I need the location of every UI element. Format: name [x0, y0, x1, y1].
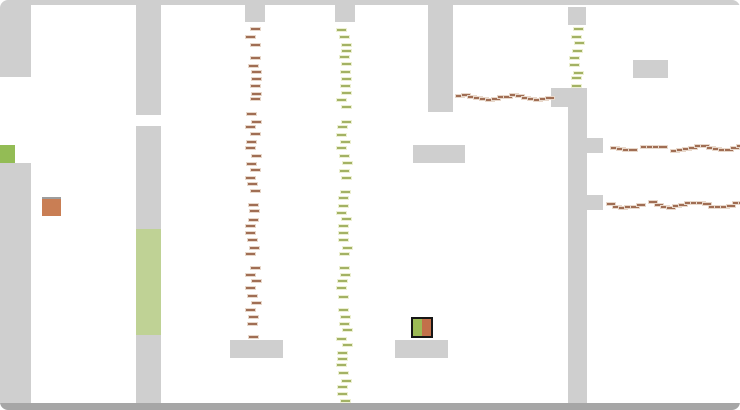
- trail-brown-vertical-dash: [251, 70, 262, 74]
- trail-brown-vertical-dash: [247, 182, 258, 186]
- trail-green-vertical-long-dash: [340, 273, 351, 277]
- trail-green-vertical-long-dash: [337, 357, 348, 361]
- bottom-border: [0, 403, 740, 410]
- orange-marker: [42, 197, 61, 216]
- trail-brown-vertical-dash: [248, 218, 259, 222]
- trail-green-vertical-long-dash: [341, 105, 352, 109]
- trail-brown-vertical-dash: [245, 231, 256, 235]
- trail-brown-vertical-dash: [251, 120, 262, 124]
- platform-bottom-left: [230, 340, 283, 358]
- trail-green-vertical-long-dash: [342, 161, 353, 165]
- player-left-half: [413, 319, 422, 336]
- wall-col2-mid: [136, 126, 161, 229]
- trail-green-vertical-long-dash: [341, 49, 352, 53]
- trail-green-vertical-long-dash: [341, 217, 352, 221]
- trail-brown-vertical-dash: [247, 294, 258, 298]
- trail-green-vertical-long-dash: [340, 399, 351, 403]
- trail-brown-vertical-dash: [248, 315, 259, 319]
- platform-bottom-right: [395, 340, 448, 358]
- trail-brown-vertical-dash: [251, 301, 262, 305]
- trail-brown-vertical-dash: [245, 308, 256, 312]
- trail-green-vertical-short-dash: [574, 41, 585, 45]
- player-right-half: [422, 319, 431, 336]
- game-canvas[interactable]: [0, 0, 740, 410]
- trail-green-vertical-short-dash: [572, 49, 583, 53]
- trail-brown-vertical-dash: [250, 84, 261, 88]
- trail-green-vertical-long-dash: [338, 238, 349, 242]
- trail-brown-vertical-dash: [245, 286, 256, 290]
- trail-green-vertical-long-dash: [338, 204, 349, 208]
- trail-green-vertical-long-dash: [337, 351, 348, 355]
- trail-brown-vertical-dash: [249, 209, 260, 213]
- trail-brown-vertical-dash: [251, 92, 262, 96]
- trail-green-vertical-long-dash: [338, 295, 349, 299]
- trail-green-vertical-long-dash: [340, 84, 351, 88]
- trail-brown-vertical-dash: [250, 132, 261, 136]
- trail-green-vertical-long-dash: [342, 246, 353, 250]
- platform-top-right: [633, 60, 668, 78]
- trail-green-vertical-long-dash: [337, 385, 348, 389]
- trail-brown-vertical-dash: [248, 335, 259, 339]
- trail-green-vertical-long-dash: [341, 120, 352, 124]
- wall-col2-top: [136, 5, 161, 115]
- wall-rcol-tab1: [587, 138, 603, 153]
- trail-brown-vertical-dash: [245, 146, 256, 150]
- trail-green-vertical-long-dash: [341, 379, 352, 383]
- trail-green-vertical-long-dash: [338, 231, 349, 235]
- wall-left-upper: [0, 5, 31, 77]
- trail-brown-vertical-dash: [247, 322, 258, 326]
- trail-green-vertical-short-dash: [573, 71, 584, 75]
- trail-brown-vertical-dash: [250, 56, 261, 60]
- trail-brown-vertical-dash: [246, 112, 257, 116]
- wall-rcol-tab2: [587, 195, 603, 210]
- trail-green-vertical-short-dash: [571, 35, 582, 39]
- trail-green-vertical-long-dash: [340, 70, 351, 74]
- wall-col3: [428, 5, 453, 112]
- trail-brown-vertical-dash: [250, 168, 261, 172]
- trail-brown-vertical-dash: [246, 162, 257, 166]
- trail-green-vertical-long-dash: [337, 125, 348, 129]
- trail-brown-vertical-dash: [251, 77, 262, 81]
- trail-green-vertical-short-dash: [573, 27, 584, 31]
- trail-brown-horizontal-right2-dash: [636, 203, 646, 207]
- top-border: [0, 0, 740, 5]
- wall-stub-b: [335, 5, 355, 22]
- trail-green-vertical-long-dash: [336, 28, 347, 32]
- trail-green-vertical-long-dash: [339, 35, 350, 39]
- trail-green-vertical-long-dash: [336, 98, 347, 102]
- trail-green-vertical-long-dash: [341, 43, 352, 47]
- trail-brown-vertical-dash: [248, 203, 259, 207]
- green-marker: [0, 145, 15, 163]
- door-green: [136, 229, 161, 335]
- trail-green-vertical-short-dash: [571, 76, 582, 80]
- wall-rcol-main: [568, 88, 587, 404]
- trail-green-vertical-long-dash: [341, 62, 352, 66]
- trail-green-vertical-long-dash: [337, 279, 348, 283]
- trail-brown-vertical-dash: [248, 64, 259, 68]
- trail-brown-vertical-dash: [245, 273, 256, 277]
- trail-green-vertical-long-dash: [336, 363, 347, 367]
- trail-green-vertical-long-dash: [340, 140, 351, 144]
- trail-green-vertical-short-dash: [569, 56, 580, 60]
- trail-green-vertical-long-dash: [341, 91, 352, 95]
- trail-green-vertical-long-dash: [336, 146, 347, 150]
- trail-green-vertical-long-dash: [338, 371, 349, 375]
- player-square[interactable]: [411, 317, 433, 338]
- wall-stub-a: [245, 5, 265, 22]
- wall-stub-c: [568, 7, 586, 25]
- trail-brown-horizontal-right1-dash: [628, 148, 638, 152]
- trail-green-vertical-long-dash: [341, 176, 352, 180]
- trail-green-vertical-long-dash: [339, 55, 350, 59]
- trail-green-vertical-long-dash: [339, 266, 350, 270]
- trail-green-vertical-long-dash: [339, 322, 350, 326]
- trail-green-vertical-long-dash: [339, 252, 350, 256]
- trail-green-vertical-long-dash: [336, 286, 347, 290]
- trail-green-vertical-long-dash: [339, 154, 350, 158]
- trail-brown-vertical-dash: [250, 97, 261, 101]
- trail-brown-horizontal-right1-dash: [736, 144, 740, 148]
- trail-brown-vertical-dash: [249, 246, 260, 250]
- trail-green-vertical-long-dash: [337, 392, 348, 396]
- trail-green-vertical-long-dash: [336, 337, 347, 341]
- trail-green-vertical-long-dash: [336, 133, 347, 137]
- trail-brown-vertical-dash: [245, 224, 256, 228]
- trail-brown-vertical-dash: [251, 279, 262, 283]
- trail-brown-vertical-dash: [245, 176, 256, 180]
- trail-green-vertical-short-dash: [571, 84, 582, 88]
- trail-green-vertical-long-dash: [338, 224, 349, 228]
- trail-brown-vertical-dash: [250, 43, 261, 47]
- trail-green-vertical-long-dash: [339, 169, 350, 173]
- trail-brown-vertical-dash: [250, 189, 261, 193]
- trail-brown-horizontal-top-dash: [545, 96, 555, 100]
- trail-green-vertical-long-dash: [340, 315, 351, 319]
- trail-green-vertical-long-dash: [340, 190, 351, 194]
- trail-brown-vertical-dash: [245, 35, 256, 39]
- trail-brown-vertical-dash: [246, 140, 257, 144]
- trail-green-vertical-long-dash: [338, 196, 349, 200]
- trail-brown-vertical-dash: [247, 238, 258, 242]
- wall-col2-bottom: [136, 335, 161, 404]
- trail-brown-vertical-dash: [250, 27, 261, 31]
- trail-green-vertical-long-dash: [342, 328, 353, 332]
- trail-brown-vertical-dash: [245, 252, 256, 256]
- trail-brown-vertical-dash: [250, 266, 261, 270]
- trail-brown-vertical-dash: [251, 154, 262, 158]
- trail-brown-horizontal-right1-dash: [658, 145, 668, 149]
- trail-brown-vertical-dash: [245, 125, 256, 129]
- trail-green-vertical-long-dash: [336, 211, 347, 215]
- platform-mid: [413, 145, 465, 163]
- wall-left-lower: [0, 163, 31, 404]
- trail-green-vertical-short-dash: [569, 63, 580, 67]
- trail-green-vertical-long-dash: [341, 77, 352, 81]
- trail-green-vertical-long-dash: [338, 308, 349, 312]
- trail-green-vertical-long-dash: [342, 343, 353, 347]
